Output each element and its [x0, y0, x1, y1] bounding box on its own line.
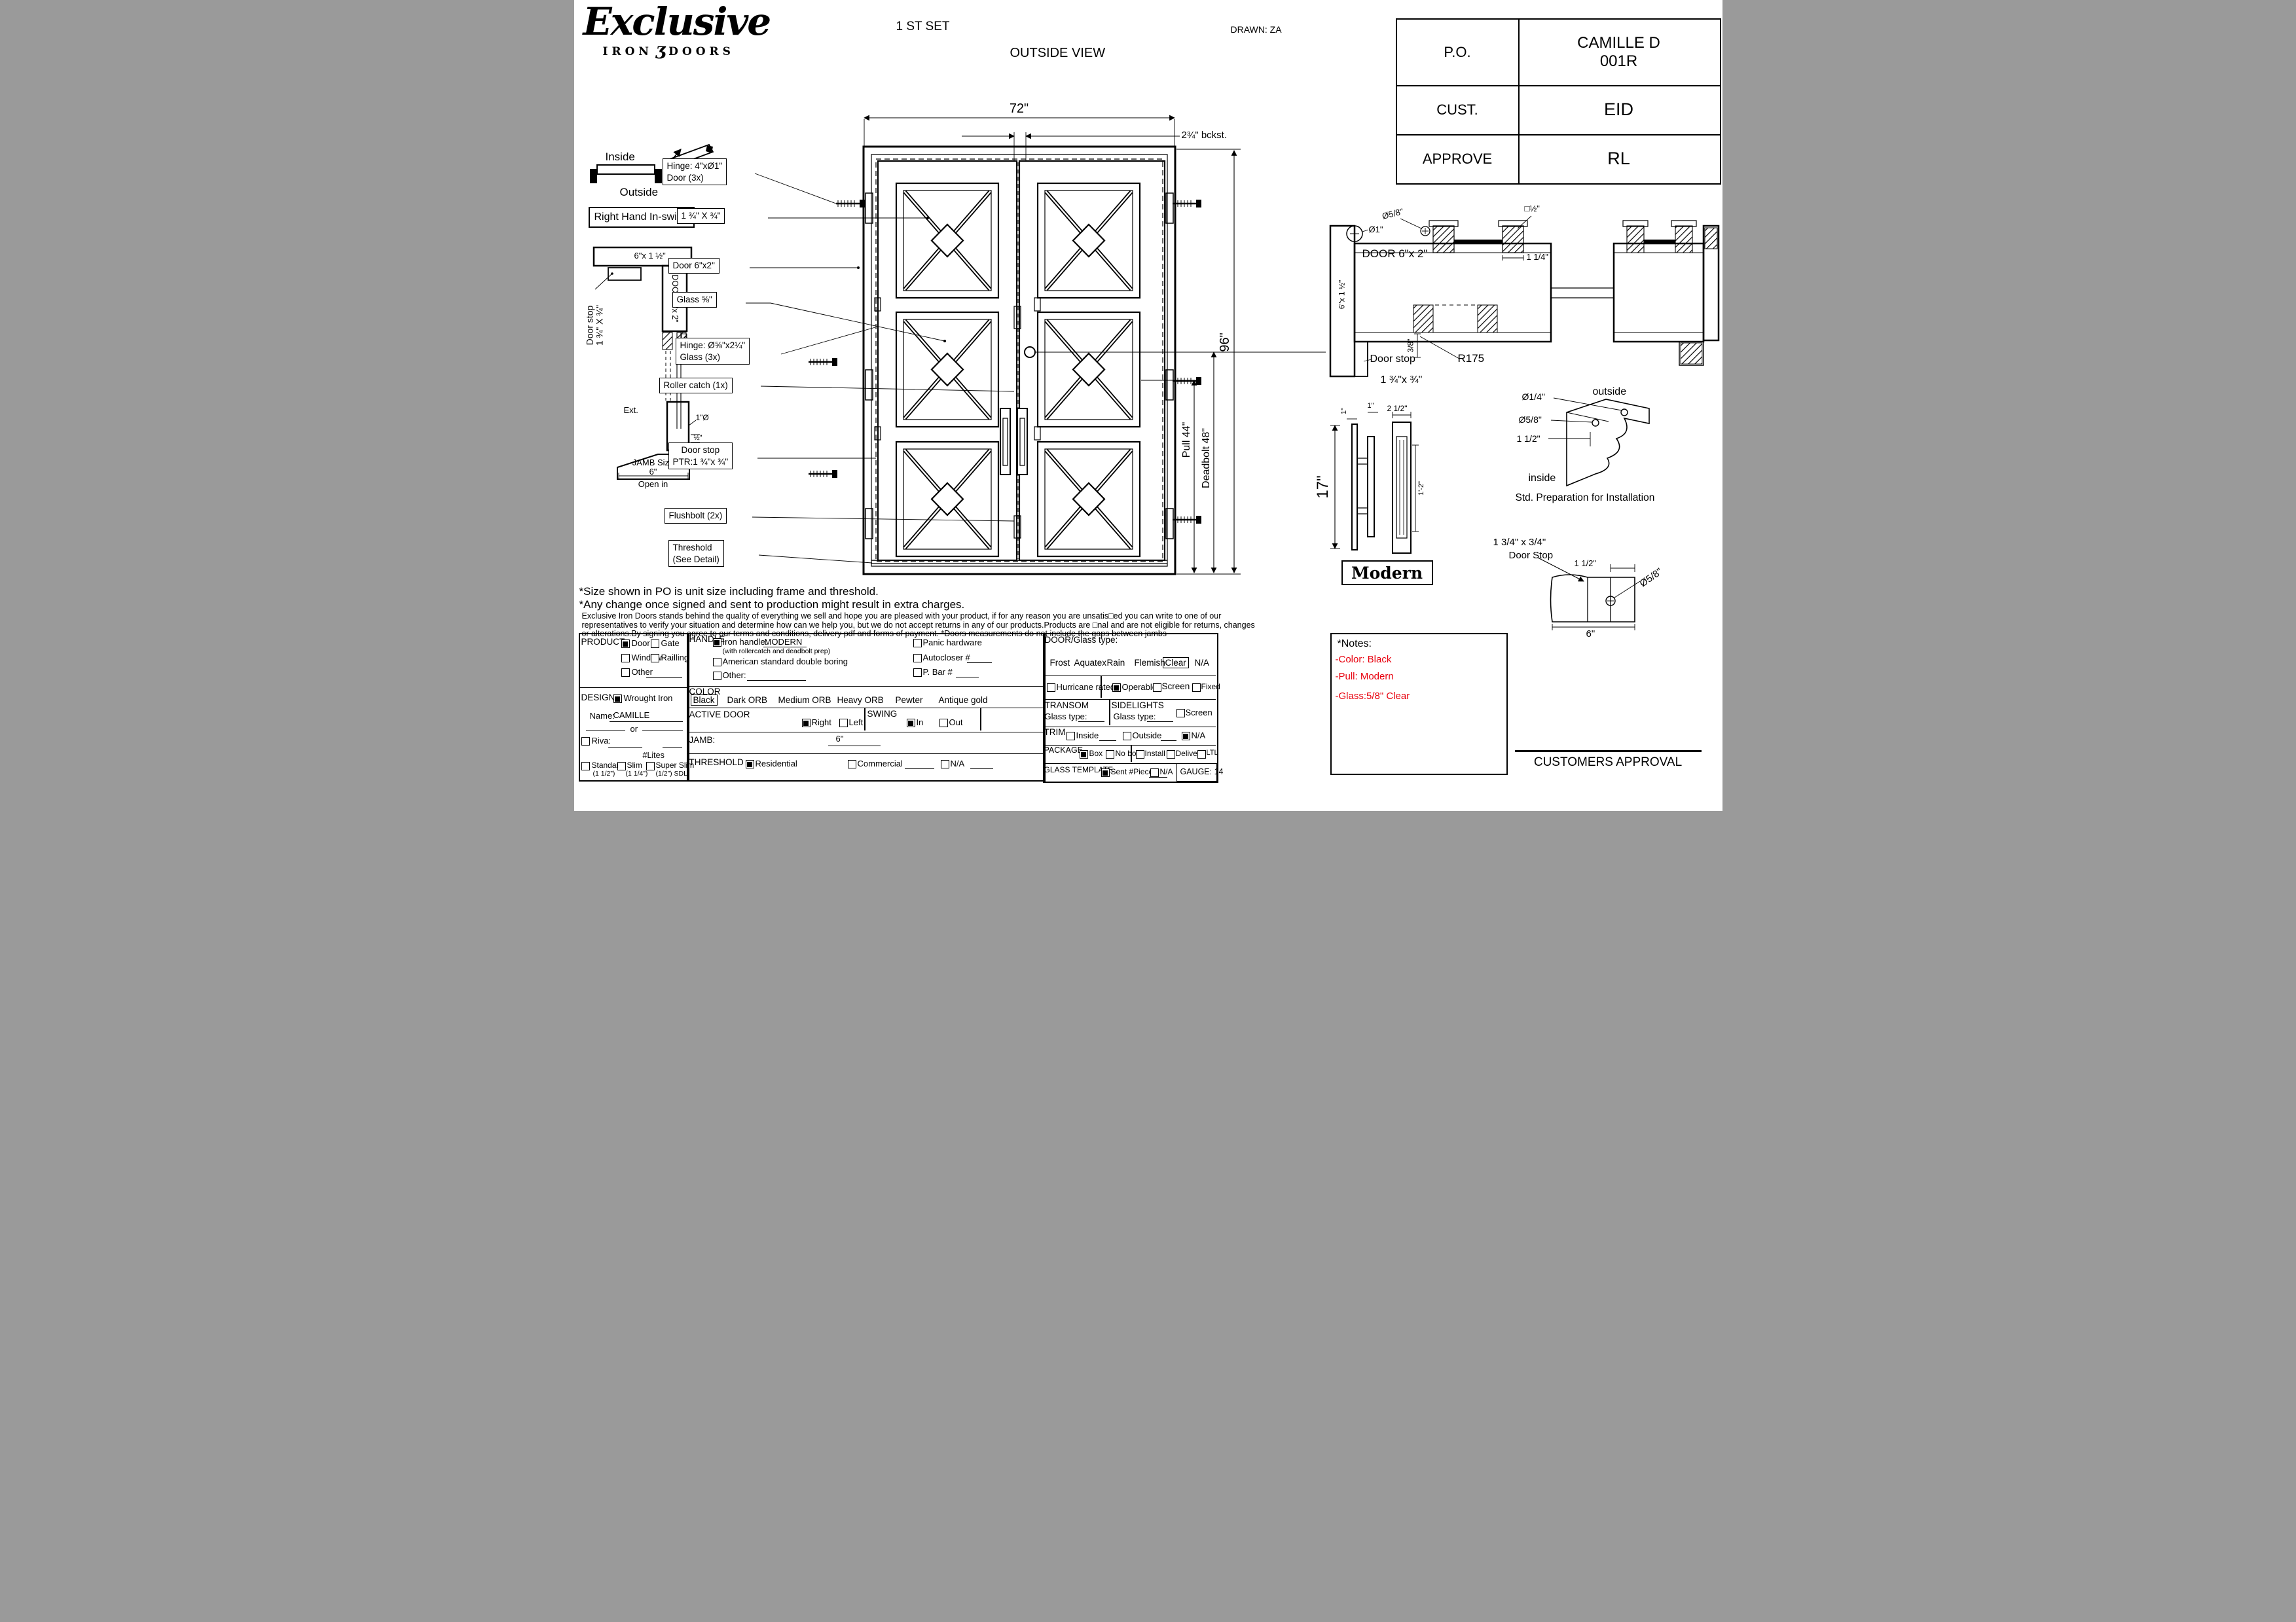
callout-door-profile: Door 6"x2" [668, 258, 720, 274]
jamb-value[interactable]: 6" [836, 734, 844, 744]
jamb-head-size: 6"x 1 ½" [634, 251, 666, 261]
pull-one-b: 1" [1368, 402, 1374, 410]
pull-handle-detail [1330, 412, 1419, 553]
po-value-line1: CAMILLE D [1577, 34, 1660, 52]
callout-door-stop-l2: PTR:1 ¾"x ¾" [673, 456, 729, 468]
design-riva-checkbox[interactable] [581, 737, 590, 746]
jamb-size-line3: Open in [617, 480, 689, 490]
inside-label: Inside [606, 151, 635, 164]
stopdetail-line2: Door Stop [1509, 550, 1554, 561]
sidelights-title: SIDELIGHTS [1112, 700, 1164, 710]
pull-inner-dim: 1'-2" [1417, 481, 1425, 496]
design-slim-sub: (1 1/4”) [626, 770, 648, 778]
dim-width: 72" [987, 101, 1052, 117]
product-other-checkbox[interactable] [621, 668, 630, 677]
set-label: 1 ST SET [896, 20, 950, 34]
divider [1043, 698, 1216, 700]
pull-height: 17" [1314, 475, 1331, 498]
handle-iron-sub: (with rollercatch and deadbolt prep) [723, 647, 831, 655]
design-riva-label: Riva: [592, 736, 611, 746]
package-delivery-checkbox[interactable] [1167, 750, 1175, 759]
callout-glass: Glass ⅝" [672, 292, 717, 308]
disclaimer-line1: *Size shown in PO is unit size including… [579, 585, 879, 598]
handle-iron-label: Iron handle: [723, 637, 768, 647]
handle-other-label: Other: [723, 670, 746, 680]
logo-script: Exclusive [583, 0, 771, 44]
logo-doors: DOORS [668, 45, 735, 58]
product-railing-checkbox[interactable] [651, 654, 659, 662]
color-option-darkorb[interactable]: Dark ORB [725, 694, 771, 706]
glasstype-rain[interactable]: Rain [1104, 657, 1128, 668]
package-nobox-checkbox[interactable] [1106, 750, 1114, 759]
pull-one-a: 1" [1339, 408, 1347, 414]
package-ltl-label: LTL [1207, 749, 1218, 757]
product-window-checkbox[interactable] [621, 654, 630, 662]
glasstemplate-na-label: N/A [1160, 767, 1173, 776]
design-wrought-label: Wrought Iron [624, 693, 673, 703]
dim-pull: Pull 44" [1181, 422, 1193, 458]
stopdetail-dim6: 6" [1586, 628, 1595, 640]
pull-name-box: Modern [1341, 560, 1433, 585]
outside-label: Outside [620, 186, 659, 199]
design-slim-label: Slim [627, 761, 642, 770]
divider [1109, 699, 1110, 725]
disclaimer-line3: Exclusive Iron Doors stands behind the q… [582, 611, 1222, 621]
stopdetail-line1: 1 3/4" x 3/4" [1493, 537, 1546, 548]
callout-threshold-l2: (See Detail) [673, 554, 720, 566]
hurricane-checkbox[interactable] [1047, 683, 1055, 692]
threshold-residential-label: Residential [756, 759, 797, 768]
design-lites-blank[interactable] [663, 746, 682, 748]
package-install-checkbox[interactable] [1136, 750, 1144, 759]
jamb-doorstop-line2: 1 ¾" X ¾" [595, 305, 605, 346]
approval-label: CUSTOMERS APPROVAL [1515, 755, 1702, 770]
trim-outside-label: Outside [1133, 730, 1162, 740]
trim-na-label: N/A [1192, 730, 1206, 740]
sidelights-screen-checkbox[interactable] [1176, 709, 1185, 717]
handle-autocloser-label: Autocloser # [923, 653, 970, 662]
note-glass: -Glass:5/8" Clear [1336, 691, 1410, 702]
package-title: PACKAGE [1044, 746, 1084, 755]
handle-panic-checkbox[interactable] [913, 639, 922, 647]
trim-outside-checkbox[interactable] [1123, 732, 1131, 740]
stopdetail-dim112: 1 1/2" [1575, 559, 1597, 569]
divider [1043, 674, 1216, 676]
callout-flushbolt: Flushbolt (2x) [665, 508, 727, 524]
po-value-line2: 001R [1600, 52, 1637, 71]
callout-threshold: Threshold (See Detail) [668, 540, 724, 567]
divider [1043, 725, 1216, 727]
product-gate-checkbox[interactable] [651, 640, 659, 648]
glasstype-frost[interactable]: Frost [1048, 657, 1073, 668]
callout-roller-text: Roller catch (1x) [664, 380, 728, 390]
jamb-blank[interactable] [828, 744, 881, 746]
active-left-checkbox[interactable] [839, 719, 848, 727]
threshold-commercial-label: Commercial [858, 759, 903, 768]
glasstemplate-sent-checkbox[interactable] [1101, 768, 1110, 777]
threshold-na-blank[interactable] [970, 767, 993, 769]
divider [579, 686, 687, 688]
glasstype-aquatex[interactable]: Aquatex [1072, 657, 1110, 668]
note-color: -Color: Black [1336, 654, 1392, 665]
color-option-pewter[interactable]: Pewter [893, 694, 926, 706]
drawn-label: DRAWN: ZA [1231, 24, 1282, 35]
operable-label: Operable [1122, 682, 1157, 692]
pull-name-text: Modern [1351, 564, 1423, 583]
package-box-checkbox[interactable] [1080, 750, 1088, 759]
jamb-half-dim: ½" [694, 434, 702, 442]
jamb-doorstop-label: Door stop 1 ¾" X ¾" [585, 305, 605, 346]
product-door-checkbox[interactable] [621, 640, 630, 648]
color-option-antiquegold[interactable]: Antique gold [936, 694, 991, 706]
sidelights-screen-label: Screen [1186, 708, 1212, 717]
product-gate-label: Gate [661, 638, 680, 648]
callout-hinge-glass: Hinge: Ø⅝"x2¼" Glass (3x) [676, 338, 750, 365]
divider [687, 752, 1043, 754]
glasstype-title: DOOR/Glass type: [1045, 635, 1118, 645]
fixed-checkbox[interactable] [1192, 683, 1201, 692]
transom-title: TRANSOM [1045, 700, 1089, 710]
cust-value: EID [1518, 85, 1720, 135]
dim-backset: 2¾" bckst. [1182, 130, 1228, 141]
active-right-label: Right [812, 717, 831, 727]
callout-door-stop: Door stop PTR:1 ¾"x ¾" [668, 442, 733, 469]
threshold-na-checkbox[interactable] [941, 760, 949, 768]
logo-subline: IRON ʒ DOORS [603, 41, 735, 60]
design-lites-label: #Lites [643, 751, 665, 760]
color-option-black[interactable]: Black [691, 694, 718, 706]
handle-panic-label: Panic hardware [923, 638, 982, 647]
prep-dim112: 1 1/2" [1517, 433, 1540, 444]
design-name-blank[interactable] [610, 720, 683, 722]
callout-hinge-glass-l2: Glass (3x) [680, 351, 746, 363]
pull-width: 2 1/2" [1387, 405, 1408, 414]
swing-out-checkbox[interactable] [939, 719, 948, 727]
threshold-commercial-blank[interactable] [905, 767, 934, 769]
callout-hinge-door-l2: Door (3x) [667, 172, 723, 184]
active-right-checkbox[interactable] [802, 719, 811, 727]
design-standard-checkbox[interactable] [581, 762, 590, 770]
swing-title: SWING [867, 709, 898, 719]
color-option-heavyorb[interactable]: Heavy ORB [835, 694, 886, 706]
approve-value: RL [1518, 134, 1720, 183]
logo-ornament-icon: ʒ [656, 40, 666, 60]
package-ltl-checkbox[interactable] [1197, 750, 1206, 759]
dim-height: 96" [1218, 333, 1232, 351]
plan-half-square: □½" [1525, 204, 1540, 214]
divider [687, 730, 1043, 732]
threshold-residential-checkbox[interactable] [746, 760, 754, 768]
handle-other-checkbox[interactable] [713, 672, 721, 680]
product-other-blank[interactable] [646, 676, 682, 678]
divider [687, 685, 1043, 687]
gauge-label: GAUGE: 14 [1180, 767, 1224, 776]
design-superslim-sub: (1/2”) SDL [656, 770, 687, 778]
glasstemplate-na-checkbox[interactable] [1150, 768, 1159, 777]
fixed-label: Fixed [1201, 682, 1220, 691]
approve-label: APPROVE [1397, 134, 1520, 183]
plan-jamb-size: 6"x 1 ½" [1338, 280, 1346, 310]
plan-stop-line2: 1 ¾"x ¾" [1381, 374, 1423, 386]
plan-stop-line1: Door stop [1370, 353, 1415, 365]
po-label: P.O. [1397, 20, 1520, 86]
divider [980, 708, 981, 730]
divider [864, 708, 866, 730]
disclaimer-line2: *Any change once signed and sent to prod… [579, 598, 965, 611]
product-title: PRODUCT: [581, 637, 627, 647]
handle-american-label: American standard double boring [723, 657, 848, 666]
prep-dia14: Ø1/4" [1522, 391, 1545, 402]
cust-label: CUST. [1397, 85, 1520, 135]
trim-title: TRIM [1044, 727, 1066, 737]
jamb-ext-label: Ext. [624, 406, 638, 416]
title-block: P.O. CAMILLE D 001R CUST. EID APPROVE RL [1396, 18, 1721, 185]
plan-r175: R175 [1458, 352, 1485, 365]
trim-inside-checkbox[interactable] [1066, 732, 1075, 740]
package-box-label: Box [1089, 749, 1103, 758]
glasstype-clear[interactable]: Clear [1163, 657, 1189, 668]
callout-roller-catch: Roller catch (1x) [659, 378, 733, 393]
handle-pbar-blank[interactable] [956, 676, 979, 677]
plan-door-label: DOOR 6"x 2" [1362, 247, 1428, 261]
notes-title: *Notes: [1338, 638, 1372, 650]
view-title: OUTSIDE VIEW [1010, 46, 1106, 61]
threshold-commercial-checkbox[interactable] [848, 760, 856, 768]
design-name-value[interactable]: CAMILLE [613, 710, 650, 720]
handle-pbar-checkbox[interactable] [913, 668, 922, 677]
door-elevation [746, 118, 1326, 574]
plan-dia1: Ø1" [1369, 225, 1383, 235]
design-or-label: or [630, 724, 638, 734]
callout-bar: 1 ¾" X ¾" [677, 208, 725, 224]
prep-caption: Std. Preparation for Installation [1516, 492, 1655, 504]
plan-section [1330, 216, 1719, 376]
color-option-mediumorb[interactable]: Medium ORB [776, 694, 834, 706]
design-standard-sub: (1 1/2”) [593, 770, 615, 778]
design-slim-checkbox[interactable] [617, 762, 626, 770]
swing-in-label: In [917, 717, 924, 727]
prep-inside: inside [1529, 473, 1556, 484]
callout-bar-text: 1 ¾" X ¾" [682, 211, 721, 221]
approval-signature-line[interactable] [1515, 750, 1702, 752]
drawing-sheet: Exclusive IRON ʒ DOORS 1 ST SET OUTSIDE … [574, 0, 1722, 811]
divider [642, 729, 683, 730]
callout-flushbolt-text: Flushbolt (2x) [669, 511, 723, 520]
operable-checkbox[interactable] [1112, 683, 1121, 692]
handle-other-blank[interactable] [747, 679, 806, 681]
design-wrought-checkbox[interactable] [613, 694, 622, 703]
package-install-label: Install [1145, 749, 1165, 758]
threshold-na-label: N/A [951, 759, 965, 768]
callout-glass-text: Glass ⅝" [677, 295, 712, 304]
design-riva-blank[interactable] [608, 746, 642, 748]
active-door-title: ACTIVE DOOR [689, 710, 750, 719]
handing-text: Right Hand In-swing [594, 211, 688, 223]
threshold-title: THRESHOLD [689, 757, 744, 767]
handle-pbar-label: P. Bar # [923, 667, 953, 677]
plan-dim114: 1 1/4" [1527, 253, 1549, 262]
handle-american-checkbox[interactable] [713, 658, 721, 666]
note-pull: -Pull: Modern [1336, 671, 1394, 682]
callout-hinge-door: Hinge: 4"xØ1" Door (3x) [663, 158, 727, 185]
handle-iron-checkbox[interactable] [713, 638, 721, 647]
trim-inside-label: Inside [1076, 730, 1099, 740]
sidelights-glass-blank[interactable] [1147, 720, 1173, 722]
design-superslim-label: Super Slim [656, 761, 695, 770]
product-door-label: Door [632, 638, 650, 648]
hurricane-label: Hurricane rated [1057, 682, 1116, 692]
glasstype-na[interactable]: N/A [1192, 657, 1212, 668]
divider [586, 729, 625, 730]
callout-threshold-l1: Threshold [673, 542, 720, 554]
design-name-label: Name: [590, 711, 615, 721]
logo-iron: IRON [603, 45, 653, 58]
jamb-doorstop-line1: Door stop [585, 305, 594, 346]
trim-na-checkbox[interactable] [1182, 732, 1190, 740]
design-title: DESIGN: [581, 693, 618, 702]
jamb-title: JAMB: [689, 735, 716, 745]
swing-out-label: Out [949, 717, 963, 727]
screen-or-checkbox[interactable] [1153, 683, 1161, 692]
handle-autocloser-checkbox[interactable] [913, 654, 922, 662]
swing-in-checkbox[interactable] [907, 719, 915, 727]
transom-glass-blank[interactable] [1078, 720, 1104, 722]
prep-dia58: Ø5/8" [1519, 414, 1542, 425]
prep-outside: outside [1593, 386, 1627, 398]
callout-hinge-glass-l1: Hinge: Ø⅝"x2¼" [680, 340, 746, 351]
callout-hinge-door-l1: Hinge: 4"xØ1" [667, 160, 723, 172]
trim-inside-blank[interactable] [1099, 739, 1116, 741]
trim-outside-blank[interactable] [1161, 739, 1176, 741]
handle-autocloser-blank[interactable] [967, 661, 992, 663]
callout-door-text: Door 6"x2" [673, 261, 715, 270]
product-railing-label: Railling [661, 653, 689, 662]
product-other-label: Other [632, 667, 653, 677]
callout-door-stop-l1: Door stop [673, 444, 729, 456]
design-superslim-checkbox[interactable] [646, 762, 655, 770]
jamb-one-dia: 1"Ø [696, 414, 709, 423]
plan-dim38: 3/8" [1406, 339, 1415, 353]
dim-deadbolt: Deadbolt 48" [1201, 428, 1212, 488]
hinge-prep-detail [1548, 398, 1649, 486]
active-left-label: Left [849, 717, 864, 727]
